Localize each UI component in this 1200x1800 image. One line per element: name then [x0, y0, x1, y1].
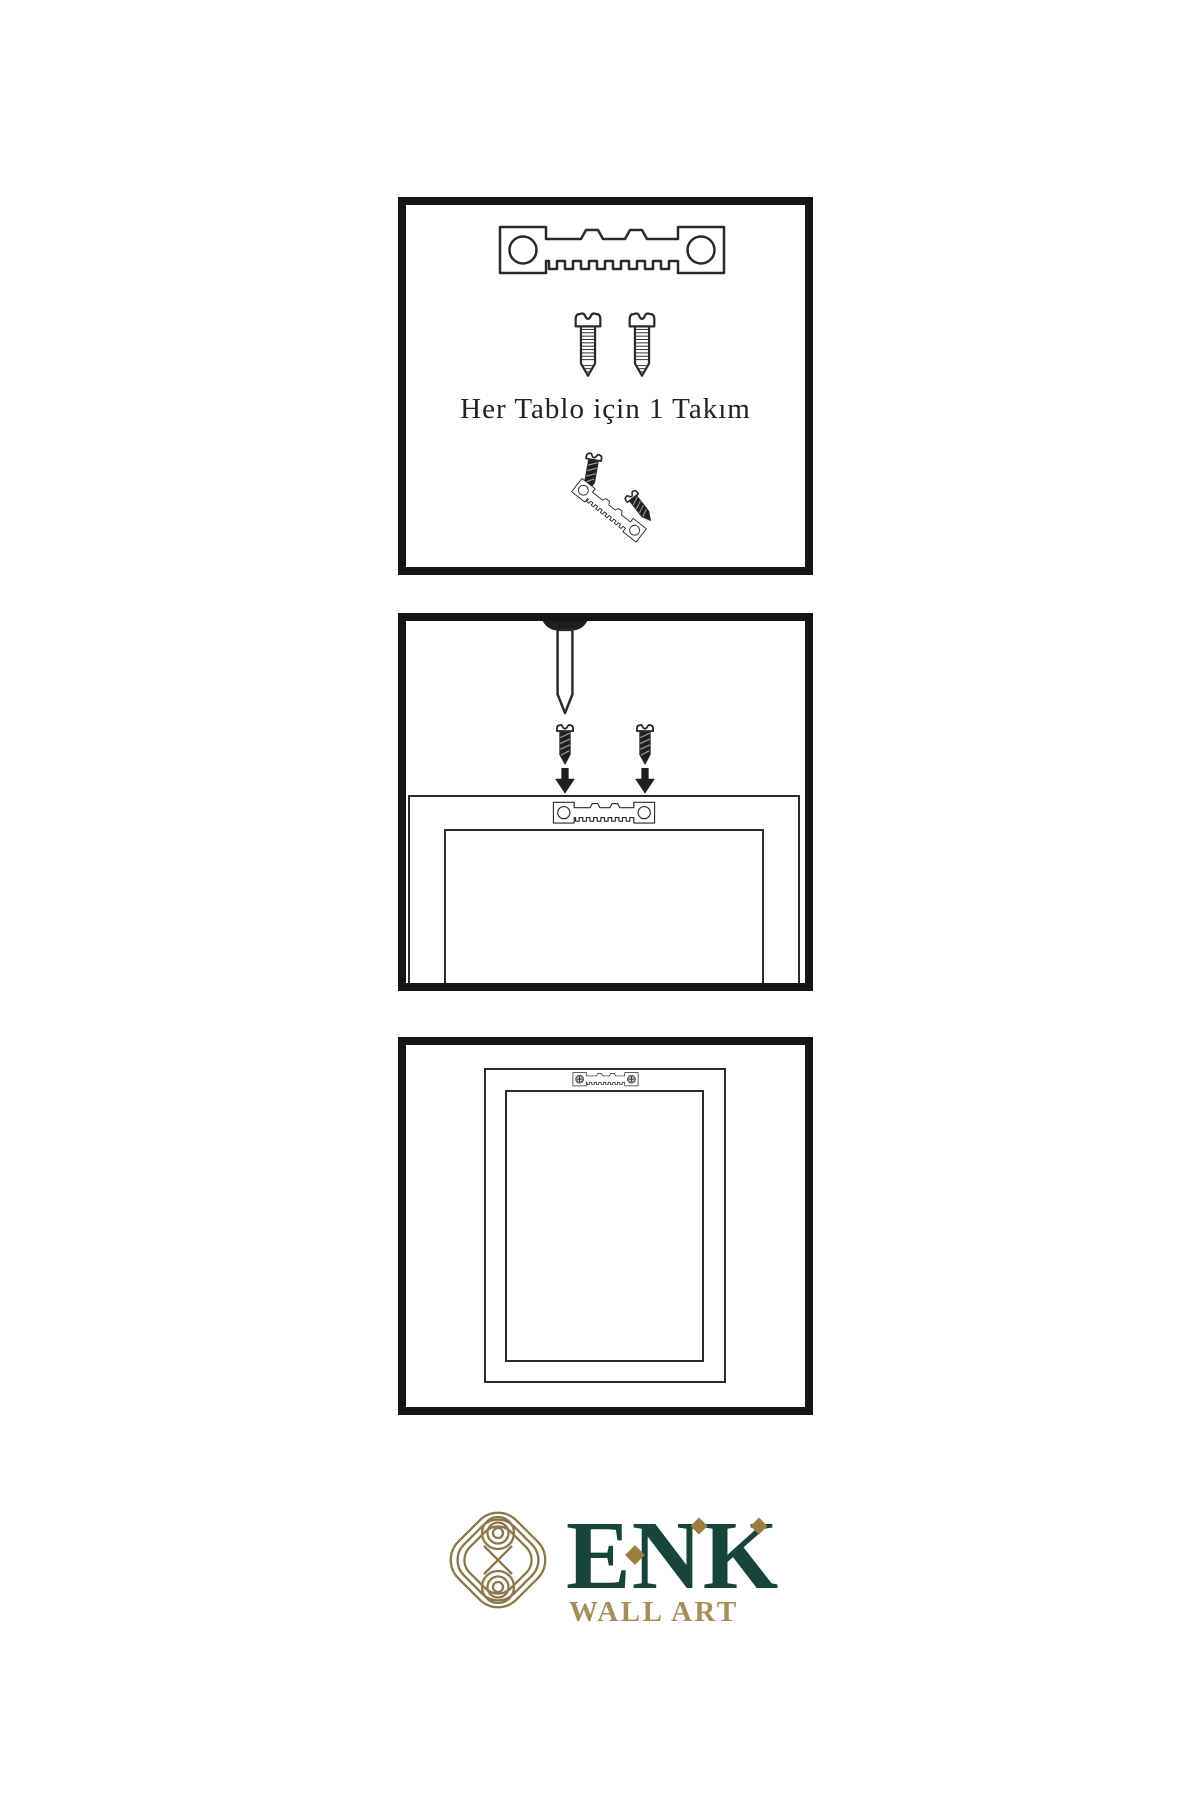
brand-tagline: WALL ART: [569, 1596, 739, 1629]
arrow-down-icon: [555, 768, 575, 794]
screw-icon: [634, 722, 656, 765]
step-panel-hung-frame: [398, 1037, 813, 1415]
instruction-sheet: Her Tablo için 1 Takım: [0, 0, 1200, 1800]
sawtooth-hanger-icon: [552, 800, 656, 825]
brand-name: ENK: [566, 1506, 779, 1606]
screw-icon: [554, 722, 576, 765]
arrow-down-icon: [635, 768, 655, 794]
sawtooth-hanger-icon: [497, 222, 727, 278]
screw-icon: [573, 307, 603, 381]
sawtooth-hanger-screwed-icon: [572, 1071, 639, 1087]
step-panel-hardware-kit: Her Tablo için 1 Takım: [398, 197, 813, 575]
frame-inner-outline: [444, 829, 764, 987]
step-panel-wall-mounting: [398, 613, 813, 991]
frame-inner-outline: [505, 1090, 704, 1362]
nail-icon: [542, 621, 588, 718]
knot-logo-icon: [438, 1493, 558, 1627]
kit-caption: Her Tablo için 1 Takım: [406, 393, 805, 426]
screw-icon: [627, 307, 657, 381]
